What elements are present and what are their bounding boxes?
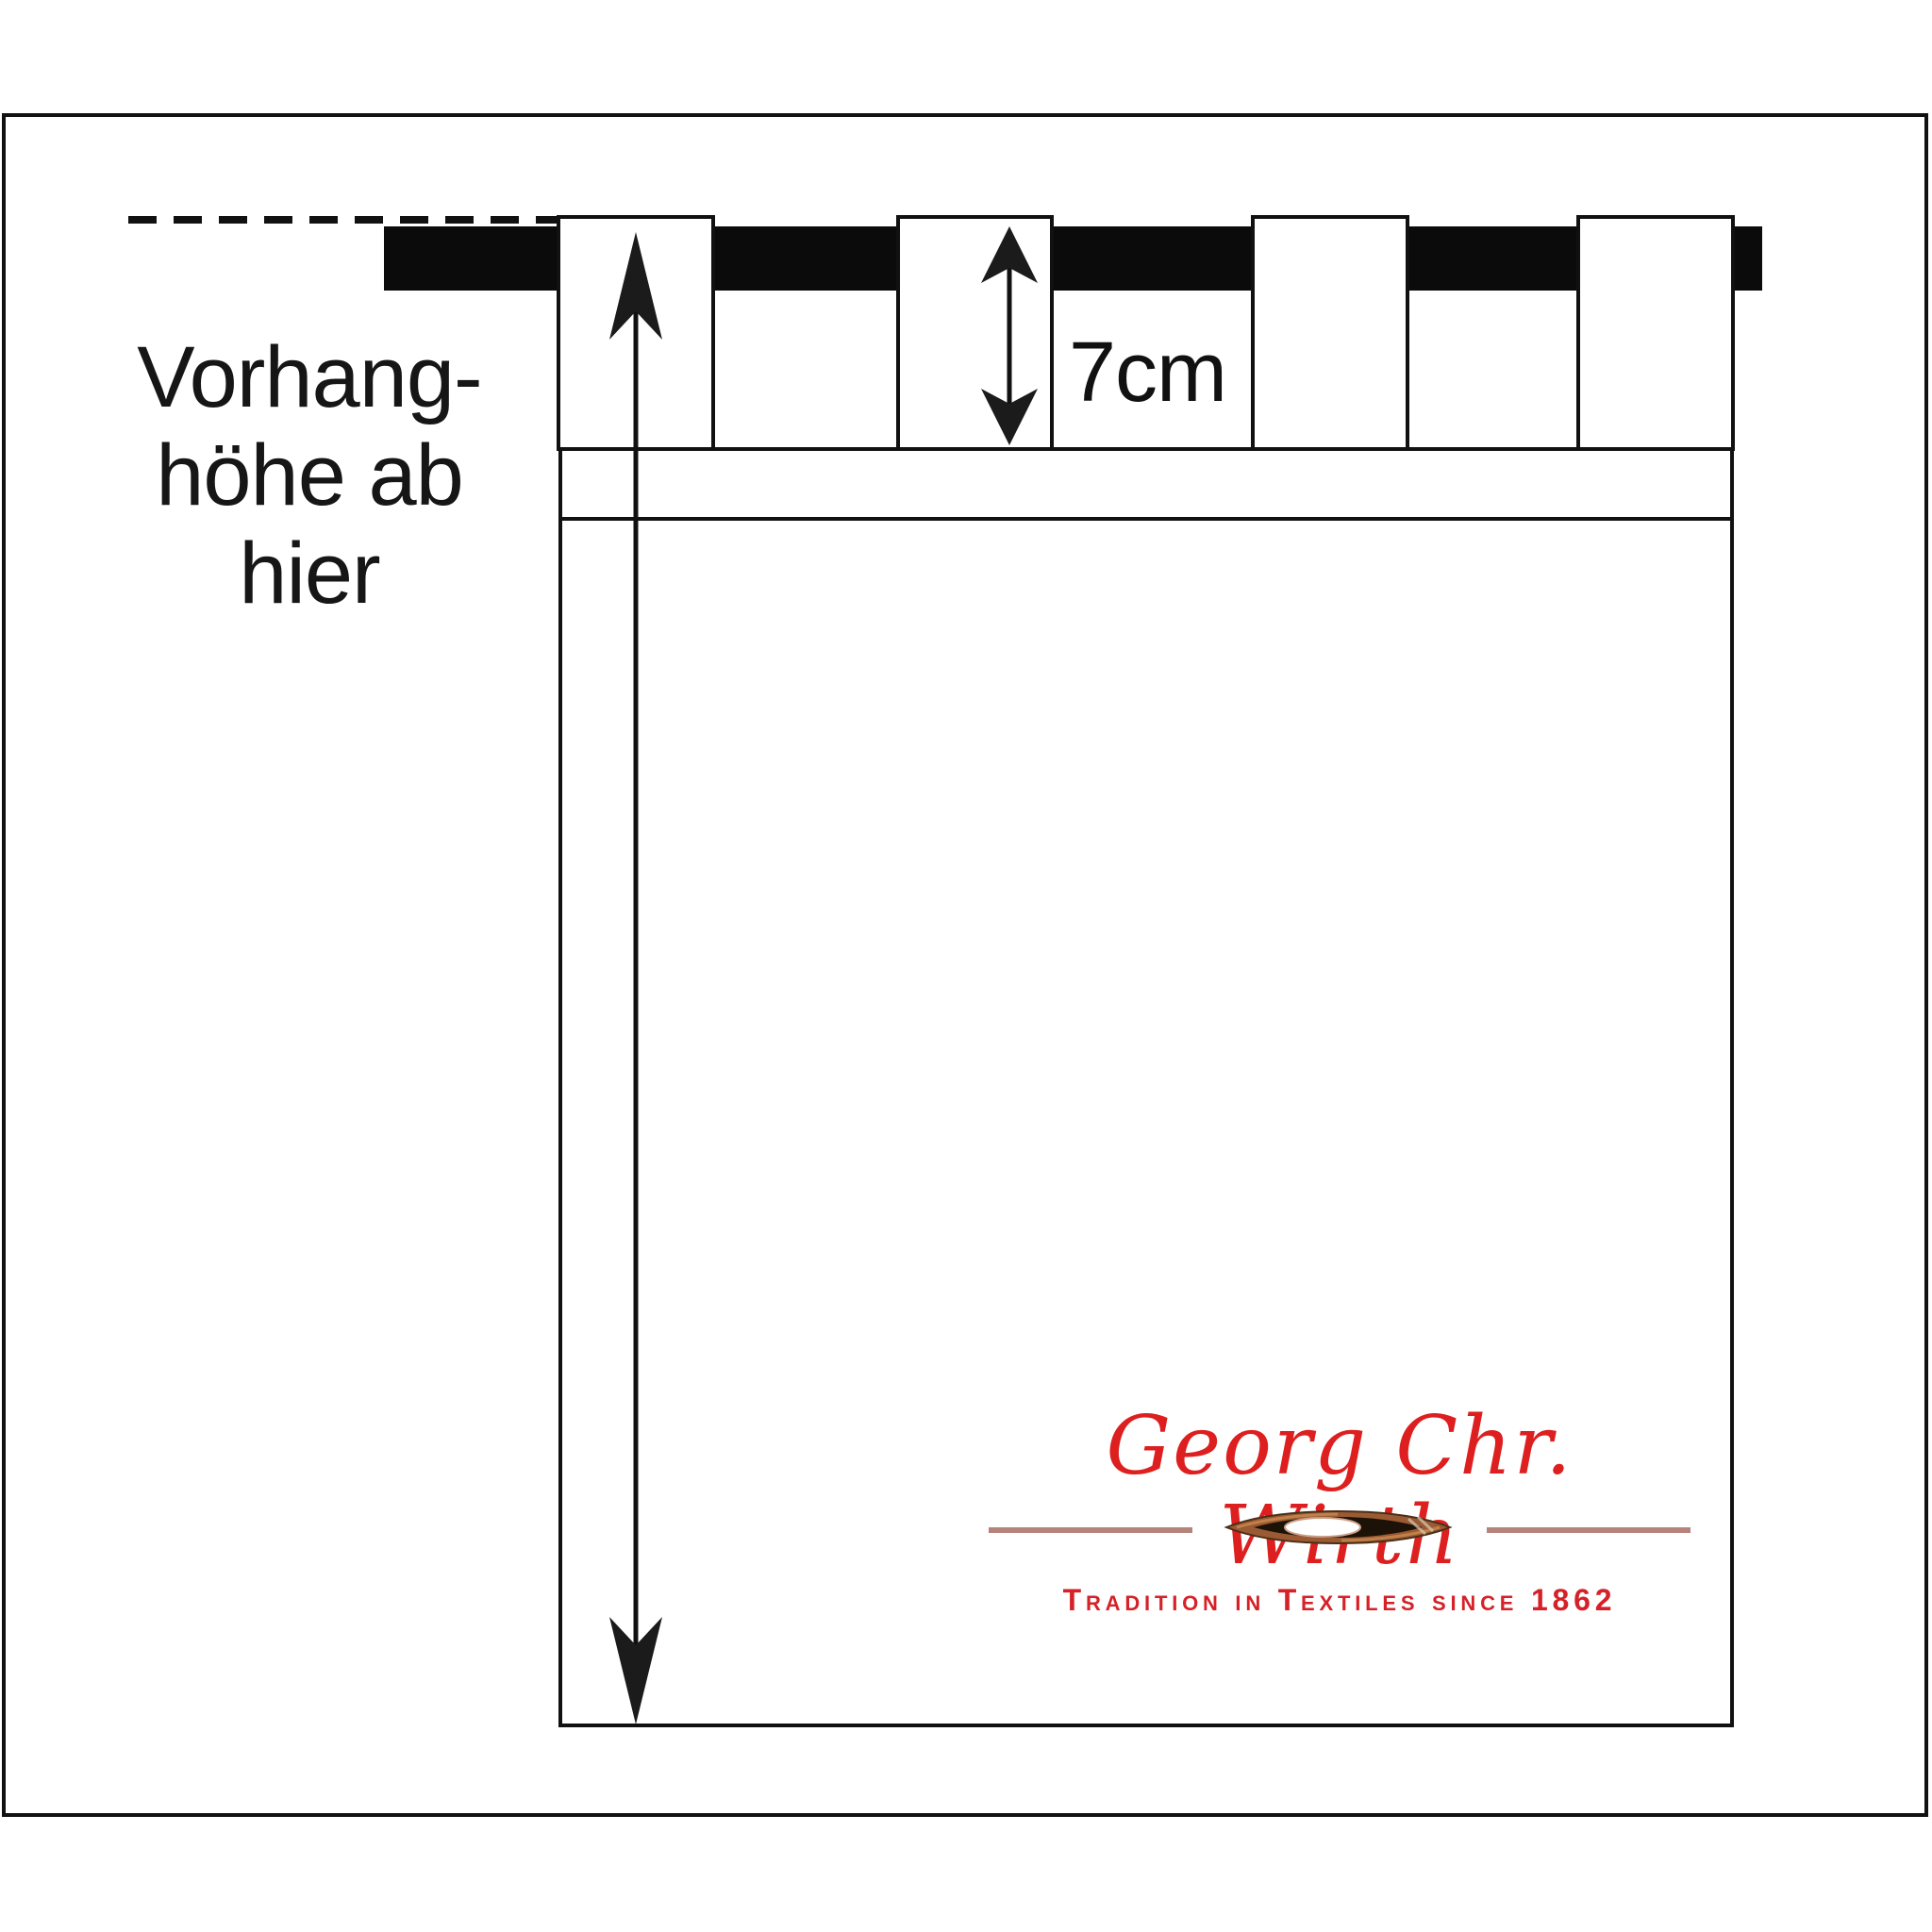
curtain-height-label-line2: höhe ab [156, 427, 463, 524]
curtain-tab [896, 215, 1054, 451]
curtain-tab [1251, 215, 1409, 451]
curtain-tab [1576, 215, 1735, 451]
curtain-height-label-line1: Vorhang- [137, 329, 481, 425]
weaving-shuttle-icon [1224, 1507, 1453, 1547]
logo-divider-left [989, 1527, 1192, 1533]
curtain-tab [557, 215, 715, 451]
logo-divider-right [1487, 1527, 1690, 1533]
curtain-height-label: Vorhang- höhe ab hier [111, 328, 508, 623]
curtain-measurement-diagram: Vorhang- höhe ab hier 7cm Georg Chr. Wir… [0, 0, 1932, 1932]
brand-tagline: Tradition in Textiles since 1862 [976, 1583, 1703, 1618]
curtain-header-seam [558, 517, 1734, 521]
tab-height-value-label: 7cm [1069, 330, 1226, 415]
brand-name: Georg Chr. Wirth [976, 1402, 1703, 1580]
curtain-height-label-line3: hier [239, 525, 379, 622]
dashed-hang-line [128, 216, 558, 224]
